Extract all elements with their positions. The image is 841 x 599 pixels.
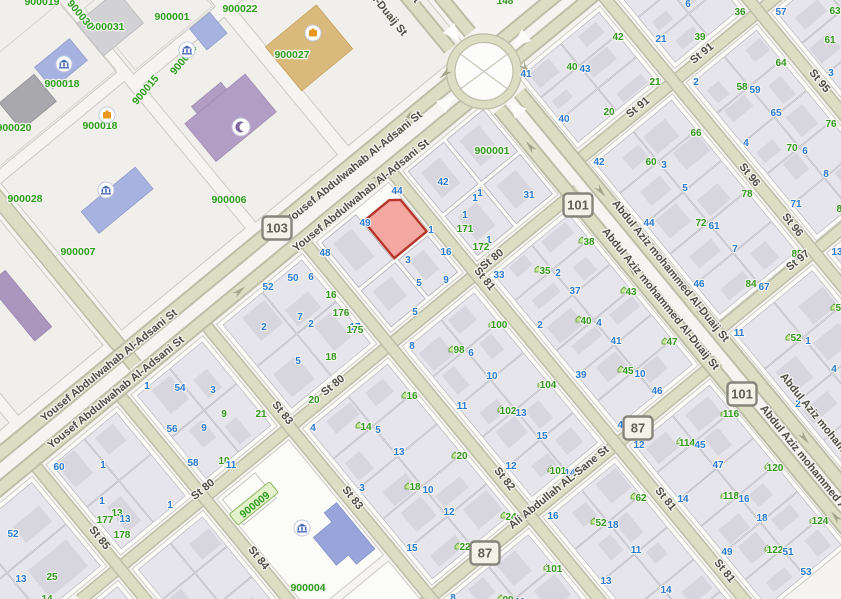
svg-text:52: 52 bbox=[262, 282, 274, 293]
svg-text:8: 8 bbox=[823, 169, 829, 180]
svg-text:1: 1 bbox=[462, 210, 468, 221]
svg-text:6: 6 bbox=[468, 348, 474, 359]
svg-text:100: 100 bbox=[491, 320, 508, 331]
svg-text:43: 43 bbox=[579, 64, 591, 75]
svg-text:9: 9 bbox=[201, 423, 207, 434]
svg-text:67: 67 bbox=[758, 282, 770, 293]
svg-text:56: 56 bbox=[166, 424, 178, 435]
svg-text:900019: 900019 bbox=[24, 0, 59, 8]
svg-text:20: 20 bbox=[308, 395, 320, 406]
svg-text:116: 116 bbox=[723, 409, 740, 420]
svg-text:10: 10 bbox=[486, 371, 498, 382]
svg-text:98: 98 bbox=[453, 345, 465, 356]
svg-text:13: 13 bbox=[831, 247, 841, 258]
svg-text:16: 16 bbox=[738, 494, 750, 505]
svg-text:54: 54 bbox=[835, 303, 841, 314]
svg-text:76: 76 bbox=[825, 119, 837, 130]
svg-text:8: 8 bbox=[409, 341, 415, 352]
svg-text:900004: 900004 bbox=[290, 582, 325, 594]
svg-text:40: 40 bbox=[566, 62, 578, 73]
svg-text:20: 20 bbox=[456, 451, 468, 462]
svg-text:21: 21 bbox=[655, 34, 667, 45]
svg-text:11: 11 bbox=[457, 401, 468, 412]
svg-text:122: 122 bbox=[767, 545, 784, 556]
svg-text:1: 1 bbox=[477, 188, 483, 199]
svg-text:3: 3 bbox=[405, 255, 411, 266]
svg-text:1: 1 bbox=[100, 460, 106, 471]
svg-text:124: 124 bbox=[812, 516, 829, 527]
svg-text:13: 13 bbox=[119, 514, 131, 525]
svg-text:22: 22 bbox=[459, 542, 471, 553]
svg-text:3: 3 bbox=[661, 160, 667, 171]
svg-text:10: 10 bbox=[634, 369, 646, 380]
svg-text:60: 60 bbox=[53, 462, 65, 473]
svg-text:21: 21 bbox=[649, 77, 661, 88]
svg-text:40: 40 bbox=[580, 316, 592, 327]
svg-text:14: 14 bbox=[360, 422, 372, 433]
svg-text:52: 52 bbox=[595, 518, 607, 529]
svg-text:18: 18 bbox=[756, 513, 768, 524]
svg-text:20: 20 bbox=[603, 107, 615, 118]
svg-text:42: 42 bbox=[612, 32, 624, 43]
svg-text:58: 58 bbox=[736, 82, 748, 93]
svg-text:6: 6 bbox=[685, 0, 691, 10]
svg-text:177: 177 bbox=[97, 515, 114, 526]
svg-text:33: 33 bbox=[493, 270, 505, 281]
svg-text:5: 5 bbox=[416, 278, 422, 289]
svg-text:118: 118 bbox=[723, 491, 740, 502]
svg-text:87: 87 bbox=[478, 546, 492, 561]
svg-text:12: 12 bbox=[443, 507, 455, 518]
svg-text:47: 47 bbox=[666, 337, 678, 348]
svg-text:52: 52 bbox=[7, 529, 19, 540]
svg-text:4: 4 bbox=[743, 138, 749, 149]
svg-text:9: 9 bbox=[443, 275, 449, 286]
svg-text:175: 175 bbox=[347, 325, 364, 336]
svg-text:1: 1 bbox=[144, 381, 150, 392]
svg-text:42: 42 bbox=[593, 157, 605, 168]
svg-text:25: 25 bbox=[46, 572, 58, 583]
svg-text:171: 171 bbox=[457, 224, 474, 235]
svg-text:13: 13 bbox=[515, 408, 527, 419]
svg-text:16: 16 bbox=[440, 247, 452, 258]
svg-text:41: 41 bbox=[610, 336, 622, 347]
svg-text:5: 5 bbox=[682, 183, 688, 194]
svg-text:49: 49 bbox=[359, 218, 371, 229]
svg-text:10: 10 bbox=[422, 485, 434, 496]
svg-text:84: 84 bbox=[745, 279, 757, 290]
svg-text:16: 16 bbox=[325, 290, 337, 301]
svg-text:46: 46 bbox=[651, 386, 663, 397]
svg-text:5: 5 bbox=[412, 307, 418, 318]
svg-text:44: 44 bbox=[391, 186, 403, 197]
svg-text:14: 14 bbox=[677, 494, 689, 505]
svg-text:7: 7 bbox=[732, 244, 738, 255]
svg-text:40: 40 bbox=[558, 114, 570, 125]
svg-text:39: 39 bbox=[575, 370, 587, 381]
svg-text:900001: 900001 bbox=[474, 145, 509, 157]
svg-text:103: 103 bbox=[266, 221, 288, 236]
svg-text:64: 64 bbox=[775, 58, 787, 69]
svg-text:120: 120 bbox=[767, 463, 784, 474]
svg-text:900027: 900027 bbox=[274, 49, 309, 61]
svg-text:178: 178 bbox=[114, 530, 131, 541]
svg-text:15: 15 bbox=[406, 543, 418, 554]
svg-text:71: 71 bbox=[790, 199, 802, 210]
svg-text:18: 18 bbox=[325, 352, 337, 363]
svg-text:13: 13 bbox=[393, 447, 405, 458]
svg-text:101: 101 bbox=[731, 387, 753, 402]
svg-text:13: 13 bbox=[15, 574, 27, 585]
svg-text:900018: 900018 bbox=[82, 120, 117, 132]
svg-text:12: 12 bbox=[505, 461, 517, 472]
svg-text:900020: 900020 bbox=[0, 122, 32, 134]
svg-text:6: 6 bbox=[308, 272, 314, 283]
svg-text:13: 13 bbox=[600, 576, 612, 587]
svg-text:6: 6 bbox=[802, 146, 808, 157]
svg-text:44: 44 bbox=[643, 218, 655, 229]
svg-text:900007: 900007 bbox=[60, 246, 95, 258]
svg-text:63: 63 bbox=[829, 6, 841, 17]
svg-text:101: 101 bbox=[567, 198, 589, 213]
svg-text:5: 5 bbox=[375, 425, 381, 436]
svg-text:54: 54 bbox=[174, 383, 186, 394]
svg-text:38: 38 bbox=[583, 237, 595, 248]
svg-text:46: 46 bbox=[693, 279, 705, 290]
svg-text:15: 15 bbox=[536, 431, 548, 442]
svg-text:3: 3 bbox=[828, 68, 834, 79]
svg-text:52: 52 bbox=[790, 333, 802, 344]
svg-text:21: 21 bbox=[255, 409, 267, 420]
svg-text:57: 57 bbox=[775, 7, 787, 18]
svg-text:114: 114 bbox=[679, 438, 696, 449]
svg-text:4: 4 bbox=[310, 423, 316, 434]
svg-text:45: 45 bbox=[694, 440, 706, 451]
svg-text:900028: 900028 bbox=[7, 193, 42, 205]
svg-text:51: 51 bbox=[782, 547, 794, 558]
svg-text:36: 36 bbox=[734, 7, 746, 18]
svg-text:14: 14 bbox=[41, 594, 53, 599]
svg-text:66: 66 bbox=[690, 128, 702, 139]
svg-text:53: 53 bbox=[800, 567, 812, 578]
svg-text:45: 45 bbox=[622, 366, 634, 377]
svg-text:1: 1 bbox=[428, 225, 434, 236]
svg-text:2: 2 bbox=[261, 322, 267, 333]
svg-text:72: 72 bbox=[695, 218, 707, 229]
svg-text:42: 42 bbox=[437, 177, 449, 188]
svg-text:900006: 900006 bbox=[211, 194, 246, 206]
svg-text:99: 99 bbox=[502, 595, 514, 599]
svg-text:83: 83 bbox=[836, 204, 841, 215]
svg-text:176: 176 bbox=[333, 308, 350, 319]
svg-text:18: 18 bbox=[409, 482, 421, 493]
svg-text:2: 2 bbox=[555, 268, 561, 279]
svg-text:70: 70 bbox=[786, 143, 798, 154]
svg-text:2: 2 bbox=[308, 319, 314, 330]
svg-text:900022: 900022 bbox=[222, 3, 257, 15]
svg-text:60: 60 bbox=[645, 157, 657, 168]
svg-text:8: 8 bbox=[450, 593, 456, 599]
svg-text:61: 61 bbox=[824, 35, 836, 46]
svg-text:11: 11 bbox=[631, 545, 642, 556]
svg-text:1: 1 bbox=[805, 336, 811, 347]
svg-text:18: 18 bbox=[607, 520, 619, 531]
svg-text:39: 39 bbox=[694, 32, 706, 43]
svg-text:47: 47 bbox=[712, 460, 724, 471]
svg-text:1: 1 bbox=[99, 496, 105, 507]
svg-text:11: 11 bbox=[226, 460, 237, 471]
svg-text:3: 3 bbox=[210, 385, 216, 396]
svg-text:59: 59 bbox=[749, 85, 761, 96]
svg-text:35: 35 bbox=[539, 266, 551, 277]
svg-text:2: 2 bbox=[537, 320, 543, 331]
svg-text:49: 49 bbox=[721, 547, 733, 558]
svg-text:31: 31 bbox=[523, 190, 535, 201]
svg-text:9: 9 bbox=[221, 409, 227, 420]
svg-text:172: 172 bbox=[473, 242, 490, 253]
svg-text:43: 43 bbox=[625, 287, 637, 298]
svg-text:61: 61 bbox=[708, 221, 720, 232]
svg-text:50: 50 bbox=[287, 273, 299, 284]
svg-text:14: 14 bbox=[660, 585, 672, 596]
svg-text:4: 4 bbox=[596, 318, 602, 329]
svg-text:58: 58 bbox=[187, 458, 199, 469]
svg-text:16: 16 bbox=[547, 511, 559, 522]
svg-text:62: 62 bbox=[635, 493, 647, 504]
svg-text:900018: 900018 bbox=[44, 78, 79, 90]
svg-text:16: 16 bbox=[406, 391, 418, 402]
svg-text:12: 12 bbox=[633, 440, 645, 451]
svg-text:900001: 900001 bbox=[154, 11, 189, 23]
svg-text:3: 3 bbox=[359, 483, 365, 494]
svg-text:87: 87 bbox=[631, 421, 645, 436]
svg-text:2: 2 bbox=[693, 77, 699, 88]
svg-text:148: 148 bbox=[497, 0, 514, 7]
svg-text:7: 7 bbox=[297, 312, 303, 323]
svg-text:101: 101 bbox=[546, 564, 563, 575]
svg-text:5: 5 bbox=[295, 356, 301, 367]
svg-text:41: 41 bbox=[520, 69, 532, 80]
svg-text:65: 65 bbox=[770, 108, 782, 119]
svg-text:4: 4 bbox=[831, 364, 837, 375]
svg-text:78: 78 bbox=[741, 189, 753, 200]
svg-text:104: 104 bbox=[540, 380, 557, 391]
svg-text:1: 1 bbox=[167, 500, 173, 511]
svg-text:11: 11 bbox=[734, 328, 745, 339]
svg-text:48: 48 bbox=[319, 248, 331, 259]
svg-text:102: 102 bbox=[500, 406, 517, 417]
svg-text:37: 37 bbox=[569, 286, 581, 297]
